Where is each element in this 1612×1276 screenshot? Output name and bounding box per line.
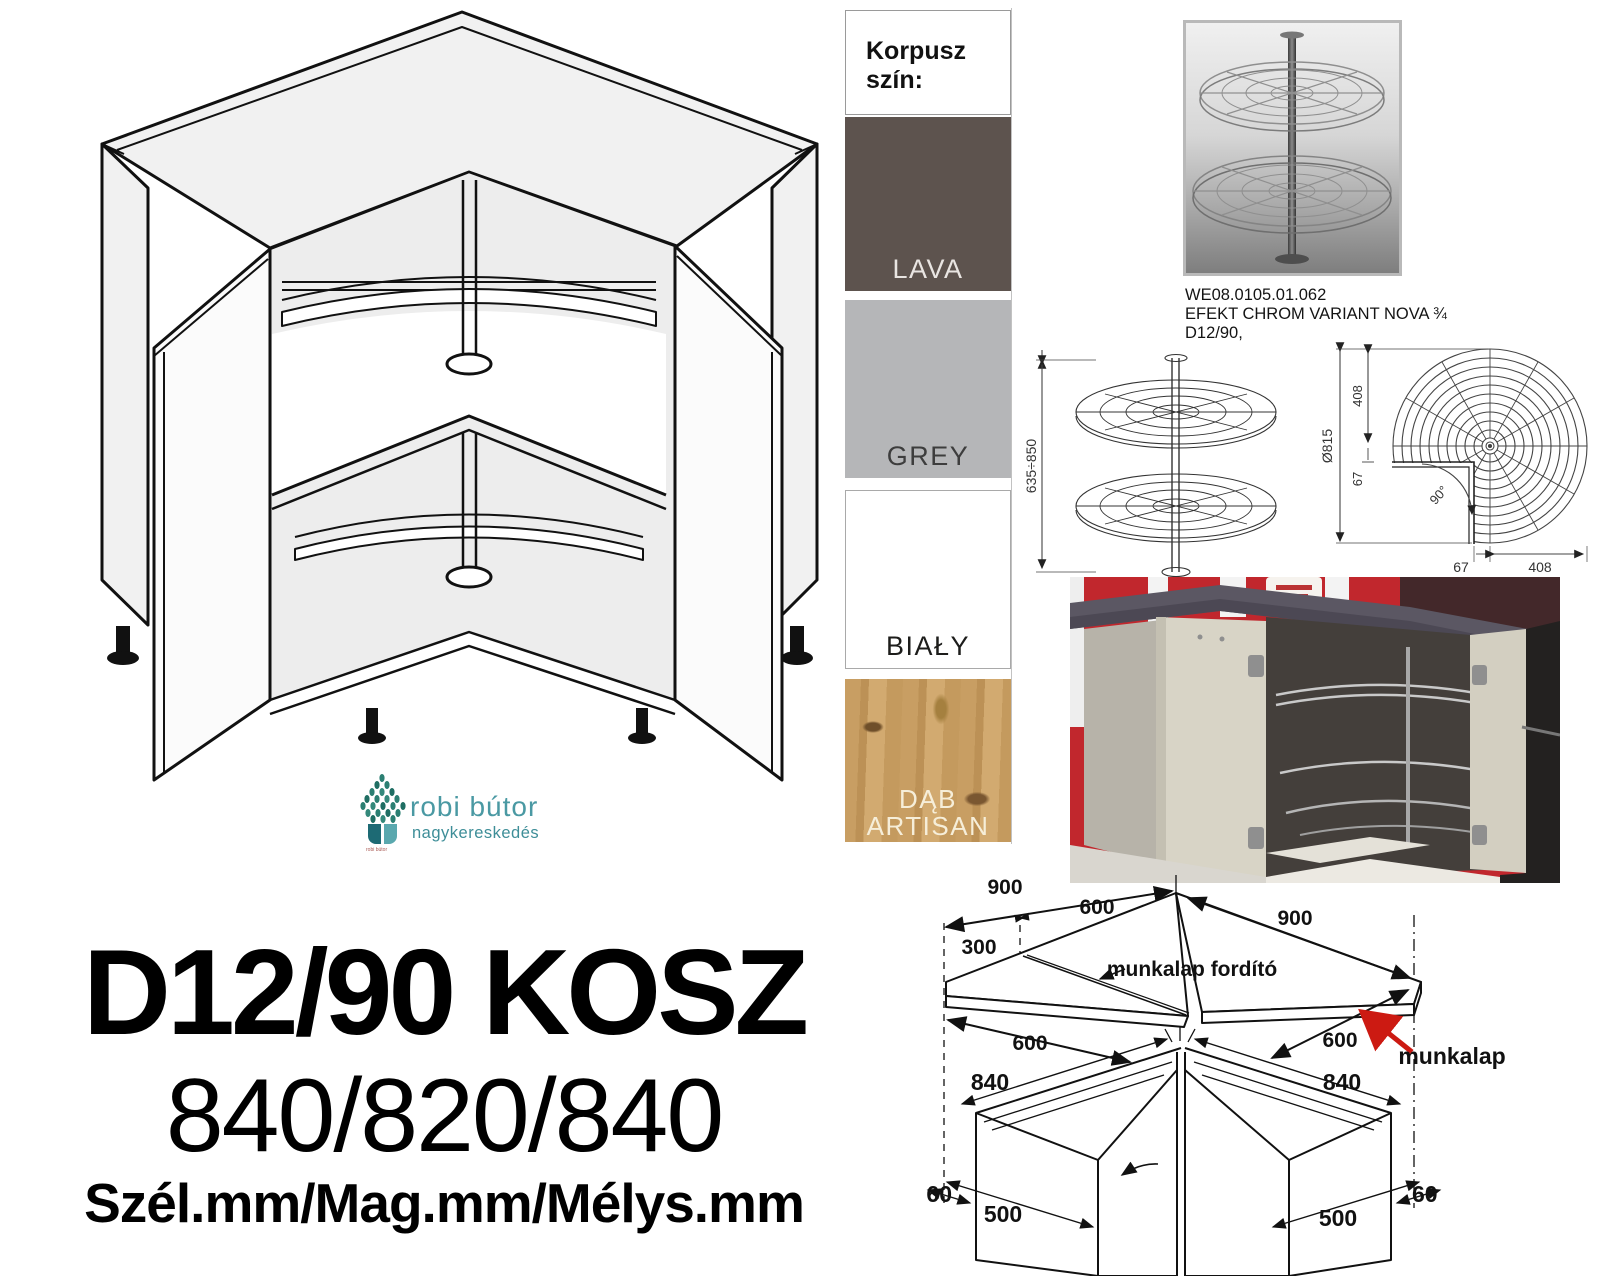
dim-left-end: 300 (961, 936, 996, 959)
dim-right-door: 500 (1319, 1205, 1357, 1231)
logo-tree-icon (360, 774, 405, 844)
height-range-dim: 635÷850 (1026, 439, 1039, 494)
carousel-product-photo (1183, 20, 1402, 276)
dim-right-front: 600 (1322, 1029, 1357, 1052)
swatch-bialy-label: BIAŁY (846, 631, 1010, 662)
dim-left-width: 840 (971, 1069, 1009, 1095)
worktop-plan-drawing: 900 600 300 600 munkalap fordító 900 600… (900, 830, 1612, 1276)
dim-right-width: 840 (1323, 1069, 1361, 1095)
dim-left-door: 500 (984, 1201, 1022, 1227)
brand-logo: robi bútor nagykereskedés robi bútor (338, 772, 568, 852)
title-block: D12/90 KOSZ 840/820/840 Szél.mm/Mag.mm/M… (70, 928, 818, 1231)
top-radius-dim: 408 (1350, 385, 1365, 407)
swatch-grey: GREY (845, 300, 1011, 478)
dim-left-front: 600 (1012, 1032, 1047, 1055)
product-title: D12/90 KOSZ (70, 928, 818, 1056)
korpusz-header: Korpusz szín: (845, 10, 1011, 115)
brand-tiny-mark: robi bútor (366, 847, 387, 852)
swatch-dab-artisan: DĄB ARTISAN (845, 679, 1011, 842)
bottom-offset-dim: 67 (1453, 559, 1469, 575)
corner-piece-label: munkalap fordító (1107, 958, 1277, 981)
worktop-label: munkalap (1398, 1043, 1505, 1069)
dim-right-length: 900 (1277, 907, 1312, 930)
dim-left-length: 900 (987, 876, 1022, 899)
swatch-bialy: BIAŁY (845, 490, 1011, 669)
bottom-radius-dim: 408 (1528, 559, 1552, 575)
carousel-side-drawing: 635÷850 (1026, 350, 1296, 582)
dim-left-inner: 600 (1079, 896, 1114, 919)
offset-dim: 67 (1350, 472, 1365, 486)
accessory-name: EFEKT CHROM VARIANT NOVA ¾ (1185, 305, 1447, 324)
swatch-grey-label: GREY (845, 441, 1011, 472)
brand-name: robi bútor (410, 791, 538, 822)
carousel-top-view-drawing: Ø815 408 67 90° 67 408 (1318, 336, 1612, 582)
diameter-dim: Ø815 (1319, 429, 1335, 463)
accessory-code: WE08.0105.01.062 (1185, 286, 1447, 305)
dim-left-gap: 60 (926, 1181, 952, 1207)
korpusz-color-column: Korpusz szín: LAVA GREY BIAŁY DĄB ARTISA… (845, 8, 1012, 844)
cabinet-line-drawing (60, 0, 840, 800)
swatch-lava: LAVA (845, 117, 1011, 291)
korpusz-header-label: Korpusz szín: (866, 37, 1010, 95)
brand-subtitle: nagykereskedés (412, 824, 539, 842)
accessory-info: WE08.0105.01.062 EFEKT CHROM VARIANT NOV… (1185, 286, 1447, 343)
product-sheet: robi bútor nagykereskedés robi bútor D12… (0, 0, 1612, 1276)
dim-right-gap: 60 (1412, 1181, 1438, 1207)
dimensions-legend: Szél.mm/Mag.mm/Mélys.mm (70, 1176, 818, 1231)
product-dimensions: 840/820/840 (70, 1064, 818, 1168)
swatch-lava-label: LAVA (845, 254, 1011, 285)
